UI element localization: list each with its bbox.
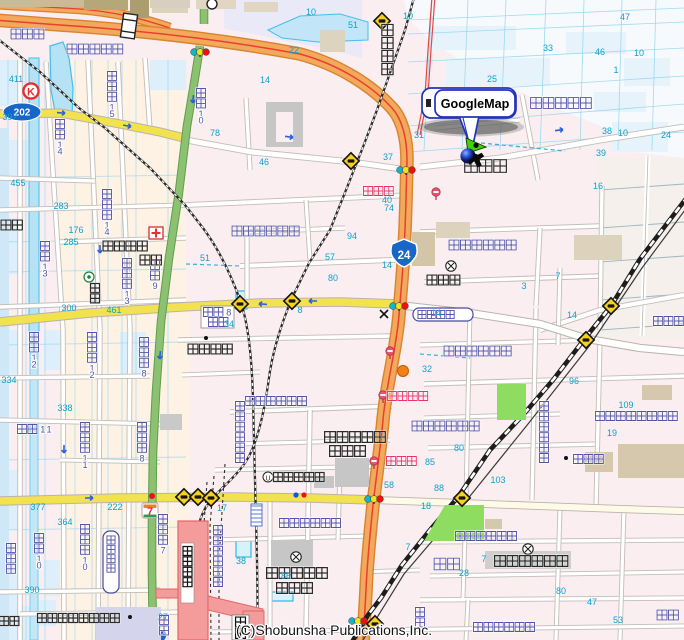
svg-text:51: 51	[200, 253, 210, 263]
svg-text:7: 7	[481, 554, 486, 564]
svg-text:58: 58	[384, 480, 394, 490]
svg-text:24: 24	[661, 130, 671, 140]
svg-text:38: 38	[236, 556, 246, 566]
svg-text:1: 1	[613, 65, 618, 75]
svg-text:8: 8	[226, 307, 231, 317]
svg-text:34: 34	[224, 319, 234, 329]
svg-text:94: 94	[347, 231, 357, 241]
svg-text:9: 9	[152, 281, 157, 291]
svg-text:96: 96	[569, 376, 579, 386]
svg-text:338: 338	[57, 403, 72, 413]
svg-text:51: 51	[348, 20, 358, 30]
svg-text:74: 74	[384, 203, 394, 213]
svg-text:10: 10	[403, 11, 413, 21]
svg-text:8: 8	[139, 454, 144, 464]
svg-text:364: 364	[57, 517, 72, 527]
svg-text:19: 19	[607, 428, 617, 438]
svg-text:39: 39	[596, 148, 606, 158]
svg-text:283: 283	[53, 201, 68, 211]
svg-text:18: 18	[421, 501, 431, 511]
svg-text:38: 38	[602, 126, 612, 136]
svg-text:K: K	[27, 87, 35, 99]
svg-text:2: 2	[31, 359, 36, 369]
svg-text:53: 53	[613, 615, 623, 625]
svg-text:222: 222	[107, 502, 122, 512]
svg-text:33: 33	[543, 43, 553, 53]
svg-text:10: 10	[306, 7, 316, 17]
svg-text:88: 88	[434, 483, 444, 493]
svg-text:86: 86	[281, 571, 291, 581]
svg-text:7: 7	[147, 506, 153, 518]
svg-text:8: 8	[297, 305, 302, 315]
svg-text:300: 300	[61, 303, 76, 313]
svg-text:57: 57	[325, 252, 335, 262]
svg-text:37: 37	[383, 152, 393, 162]
svg-text:14: 14	[260, 75, 270, 85]
svg-text:16: 16	[593, 181, 603, 191]
svg-text:U: U	[265, 475, 270, 482]
svg-text:285: 285	[63, 237, 78, 247]
svg-text:17: 17	[217, 503, 227, 513]
svg-text:4: 4	[57, 146, 62, 156]
svg-text:7: 7	[160, 546, 165, 556]
svg-text:78: 78	[210, 128, 220, 138]
svg-text:10: 10	[634, 48, 644, 58]
svg-text:411: 411	[9, 74, 23, 84]
svg-text:28: 28	[459, 568, 469, 578]
svg-text:25: 25	[487, 74, 497, 84]
svg-text:7: 7	[555, 271, 560, 281]
svg-text:10: 10	[618, 128, 628, 138]
svg-text:22: 22	[289, 45, 299, 55]
svg-text:4: 4	[104, 227, 109, 237]
svg-text:32: 32	[422, 364, 432, 374]
svg-text:397: 397	[2, 112, 17, 122]
svg-text:0: 0	[82, 562, 87, 572]
svg-text:80: 80	[328, 273, 338, 283]
svg-text:455: 455	[10, 178, 25, 188]
svg-text:0: 0	[36, 560, 41, 570]
svg-text:47: 47	[620, 12, 630, 22]
svg-text:0: 0	[198, 115, 203, 125]
svg-text:GoogleMap: GoogleMap	[441, 97, 510, 111]
svg-text:1: 1	[40, 424, 45, 434]
svg-text:27: 27	[158, 612, 168, 622]
svg-text:390: 390	[24, 585, 39, 595]
svg-text:377: 377	[30, 502, 45, 512]
svg-text:7: 7	[405, 542, 410, 552]
svg-text:31: 31	[414, 130, 424, 140]
svg-text:5: 5	[109, 109, 114, 119]
svg-text:1: 1	[82, 460, 87, 470]
svg-text:85: 85	[425, 457, 435, 467]
svg-text:3: 3	[42, 268, 47, 278]
svg-text:176: 176	[68, 225, 83, 235]
svg-text:461: 461	[106, 305, 121, 315]
svg-text:46: 46	[595, 47, 605, 57]
svg-text:103: 103	[490, 475, 505, 485]
svg-text:80: 80	[454, 443, 464, 453]
svg-text:(C)Shobunsha Publications,Inc.: (C)Shobunsha Publications,Inc.	[236, 622, 432, 638]
svg-text:3: 3	[124, 296, 129, 306]
svg-text:8: 8	[141, 369, 146, 379]
svg-text:14: 14	[567, 310, 577, 320]
svg-text:109: 109	[618, 400, 633, 410]
svg-text:14: 14	[382, 260, 392, 270]
svg-text:1: 1	[46, 424, 51, 434]
svg-text:47: 47	[587, 597, 597, 607]
svg-text:3: 3	[521, 281, 526, 291]
svg-text:14: 14	[431, 308, 441, 318]
svg-text:46: 46	[259, 157, 269, 167]
svg-text:334: 334	[1, 375, 16, 385]
svg-text:2: 2	[89, 370, 94, 380]
svg-text:24: 24	[398, 250, 411, 262]
svg-text:80: 80	[556, 586, 566, 596]
